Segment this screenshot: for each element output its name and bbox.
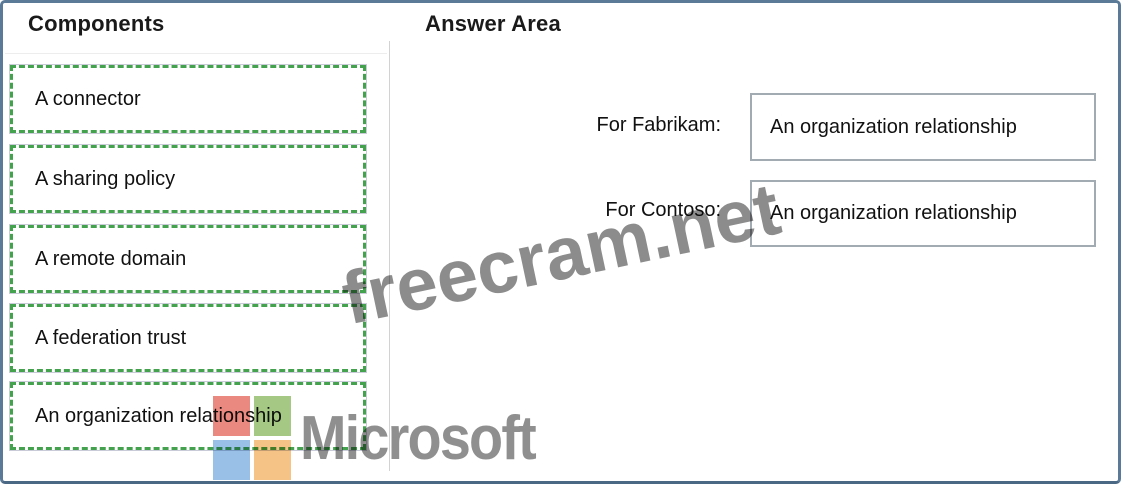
answer-area-title: Answer Area <box>425 11 561 37</box>
component-item-label: A federation trust <box>13 327 186 350</box>
component-item-organization-relationship[interactable]: An organization relationship <box>10 382 366 450</box>
component-item-connector[interactable]: A connector <box>10 65 366 133</box>
components-heading-rule <box>5 53 387 54</box>
component-item-label: A connector <box>13 88 141 111</box>
component-item-label: An organization relationship <box>13 405 282 428</box>
panel-divider <box>389 41 390 471</box>
component-item-sharing-policy[interactable]: A sharing policy <box>10 145 366 213</box>
answer-label-contoso: For Contoso: <box>433 199 721 222</box>
answer-value: An organization relationship <box>752 116 1017 139</box>
component-item-label: A sharing policy <box>13 168 175 191</box>
answer-value: An organization relationship <box>752 202 1017 225</box>
answer-dropzone-contoso[interactable]: An organization relationship <box>750 180 1096 247</box>
answer-dropzone-fabrikam[interactable]: An organization relationship <box>750 93 1096 161</box>
component-item-federation-trust[interactable]: A federation trust <box>10 304 366 372</box>
components-title: Components <box>28 11 164 37</box>
question-panel: Components Answer Area A connector A sha… <box>0 0 1121 484</box>
component-item-label: A remote domain <box>13 248 186 271</box>
answer-label-fabrikam: For Fabrikam: <box>433 114 721 137</box>
component-item-remote-domain[interactable]: A remote domain <box>10 225 366 293</box>
